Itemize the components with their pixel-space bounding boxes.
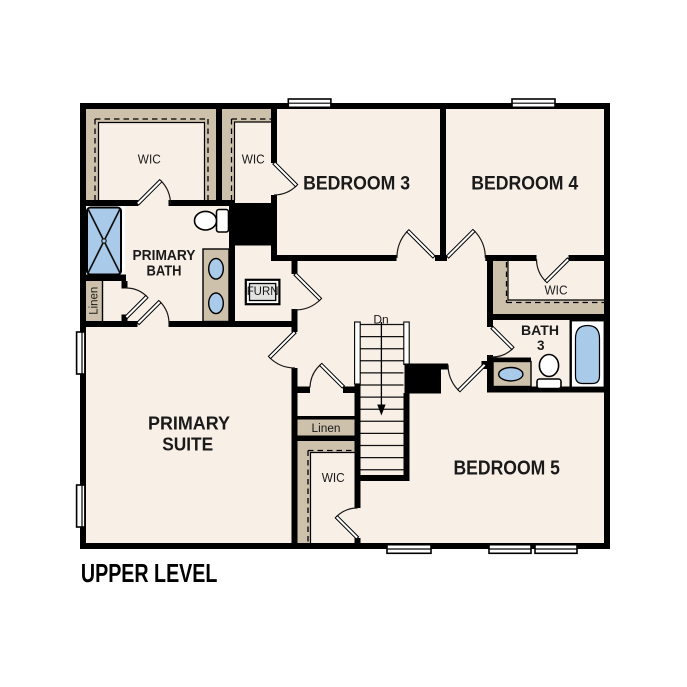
svg-text:BEDROOM 3: BEDROOM 3	[303, 172, 410, 194]
svg-text:WIC: WIC	[545, 284, 568, 298]
svg-text:SUITE: SUITE	[162, 434, 213, 454]
svg-text:BATH: BATH	[147, 264, 182, 280]
svg-text:BEDROOM 4: BEDROOM 4	[471, 172, 578, 194]
svg-text:Linen: Linen	[89, 287, 101, 315]
svg-text:Linen: Linen	[312, 423, 341, 435]
svg-text:UPPER LEVEL: UPPER LEVEL	[81, 558, 218, 588]
svg-text:FURN: FURN	[247, 286, 279, 298]
svg-text:Dn: Dn	[373, 313, 388, 327]
svg-text:PRIMARY: PRIMARY	[133, 248, 196, 264]
svg-text:BEDROOM 5: BEDROOM 5	[453, 457, 560, 479]
svg-text:WIC: WIC	[322, 471, 345, 485]
svg-text:3: 3	[537, 338, 545, 353]
svg-text:BATH: BATH	[521, 323, 559, 338]
svg-text:WIC: WIC	[138, 153, 161, 167]
svg-text:PRIMARY: PRIMARY	[148, 413, 230, 433]
svg-text:WIC: WIC	[242, 153, 265, 167]
